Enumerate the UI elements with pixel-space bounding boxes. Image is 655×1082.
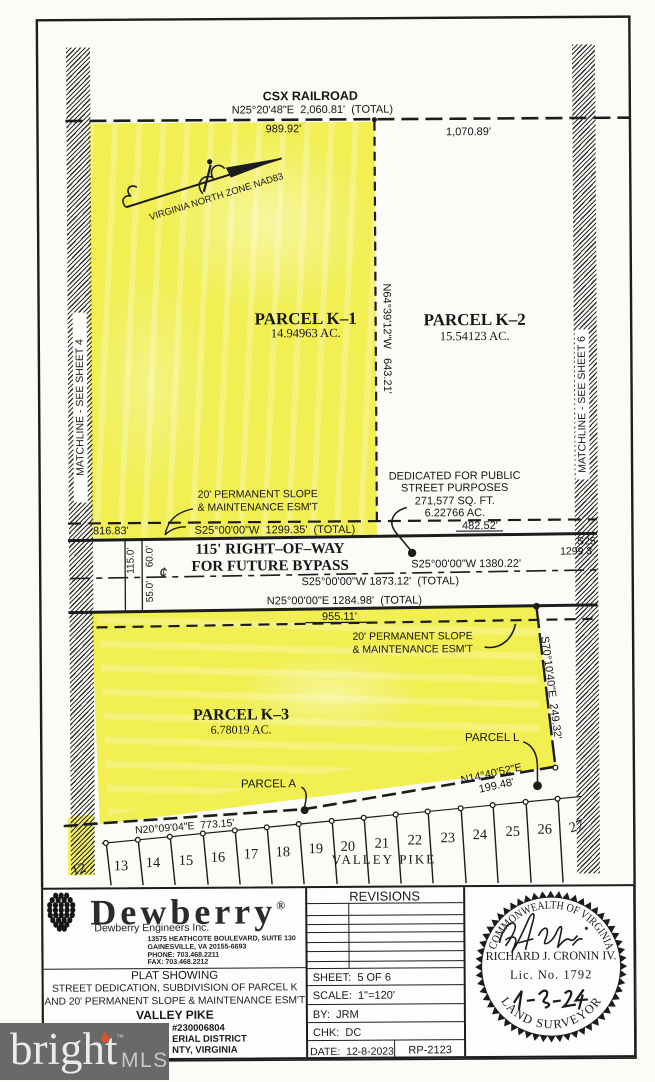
svg-text:16: 16 (211, 850, 226, 866)
svg-text:20: 20 (341, 839, 356, 855)
svg-text:22: 22 (408, 832, 423, 848)
svg-text:27: 27 (567, 817, 586, 837)
svg-text:17: 17 (244, 846, 259, 862)
svg-text:18: 18 (276, 844, 291, 860)
svg-text:23: 23 (441, 830, 456, 846)
svg-text:25: 25 (505, 824, 520, 840)
svg-text:Lic. No. 1792: Lic. No. 1792 (510, 967, 593, 982)
svg-text:24: 24 (473, 827, 488, 843)
svg-text:26: 26 (537, 822, 552, 838)
svg-text:13: 13 (114, 858, 129, 874)
svg-text:15: 15 (179, 853, 194, 869)
svg-text:21: 21 (375, 836, 390, 852)
svg-text:19: 19 (309, 841, 324, 857)
svg-text:RICHARD J. CRONIN IV.: RICHARD J. CRONIN IV. (486, 948, 617, 963)
svg-text:14: 14 (146, 855, 161, 871)
svg-text:12: 12 (70, 860, 89, 880)
